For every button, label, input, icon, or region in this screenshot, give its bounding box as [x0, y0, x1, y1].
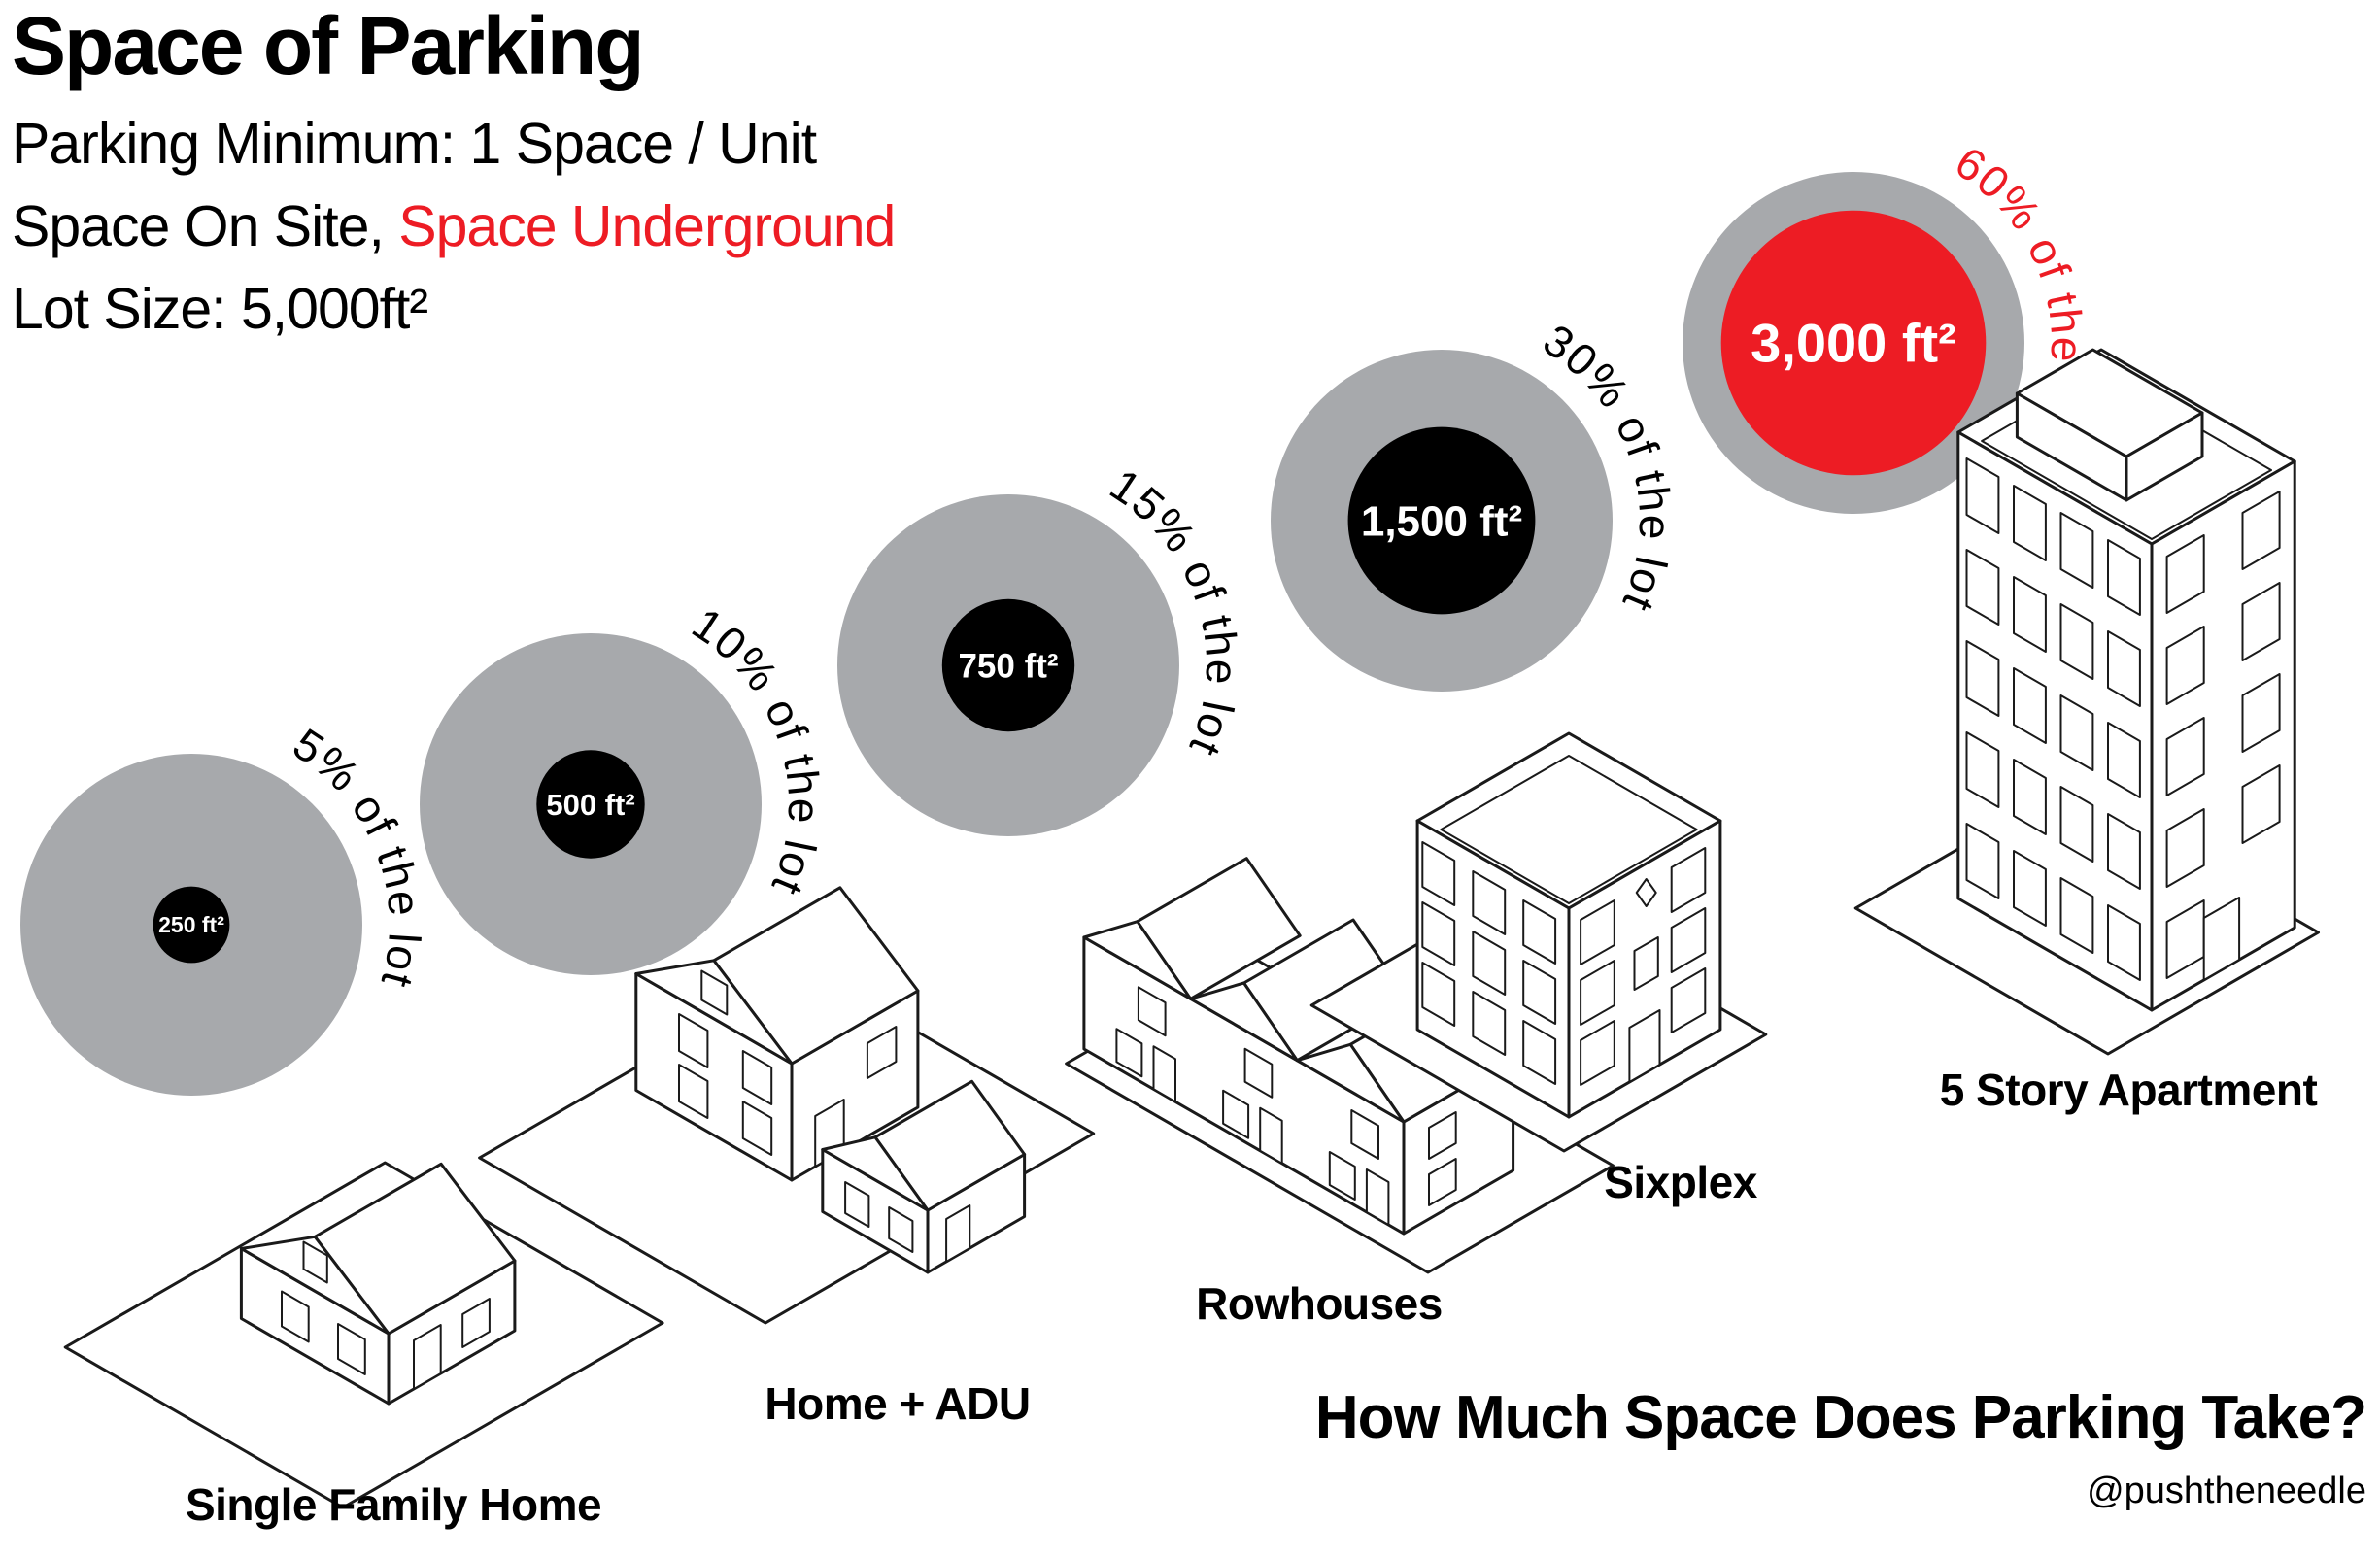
- parking-area-label: 3,000 ft²: [1751, 313, 1956, 374]
- parking-circle-4: 1,500 ft²30% of the lot: [1271, 314, 1681, 692]
- label-5-story-apartment: 5 Story Apartment: [1856, 1064, 2380, 1116]
- parking-circle-2: 500 ft²10% of the lot: [420, 597, 830, 975]
- parking-circle-3: 750 ft²15% of the lot: [837, 458, 1247, 836]
- footer-credit: @pushtheneedle: [2087, 1471, 2366, 1512]
- parking-area-label: 1,500 ft²: [1361, 497, 1522, 545]
- parking-area-label: 500 ft²: [546, 788, 634, 822]
- label-sixplex: Sixplex: [1409, 1156, 1953, 1208]
- parking-area-label: 250 ft²: [158, 912, 224, 937]
- parking-area-label: 750 ft²: [958, 647, 1058, 685]
- label-rowhouses: Rowhouses: [1047, 1277, 1591, 1330]
- label-home-adu: Home + ADU: [626, 1377, 1170, 1430]
- label-single-family-home: Single Family Home: [121, 1478, 665, 1531]
- footer-question: How Much Space Does Parking Take?: [1315, 1383, 2366, 1452]
- parking-circle-1: 250 ft²5% of the lot: [20, 718, 430, 1096]
- building-single-family-home: [65, 1163, 663, 1507]
